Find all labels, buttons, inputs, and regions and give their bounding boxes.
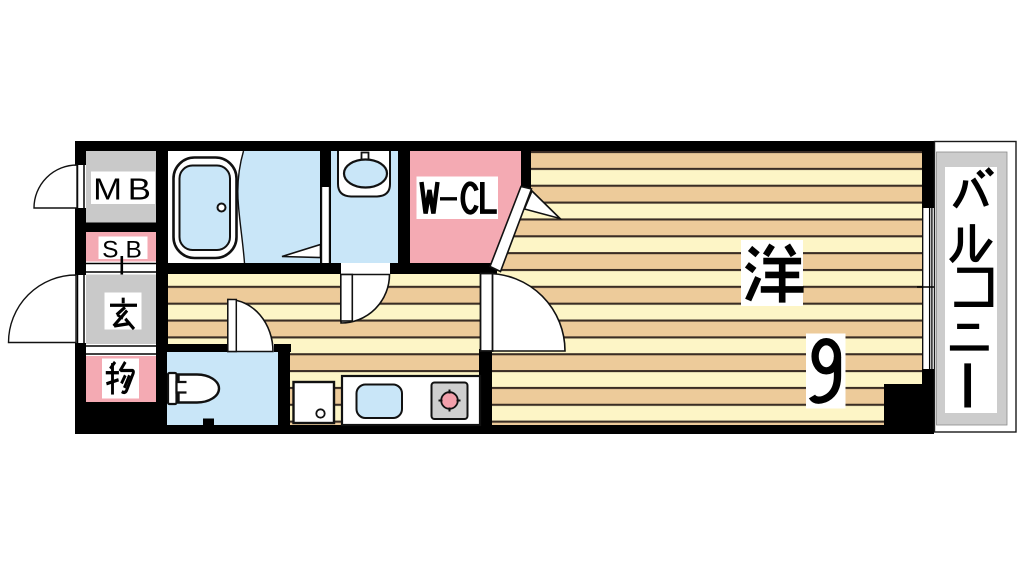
svg-text:MB: MB: [93, 171, 156, 206]
svg-text:SB: SB: [102, 237, 149, 264]
